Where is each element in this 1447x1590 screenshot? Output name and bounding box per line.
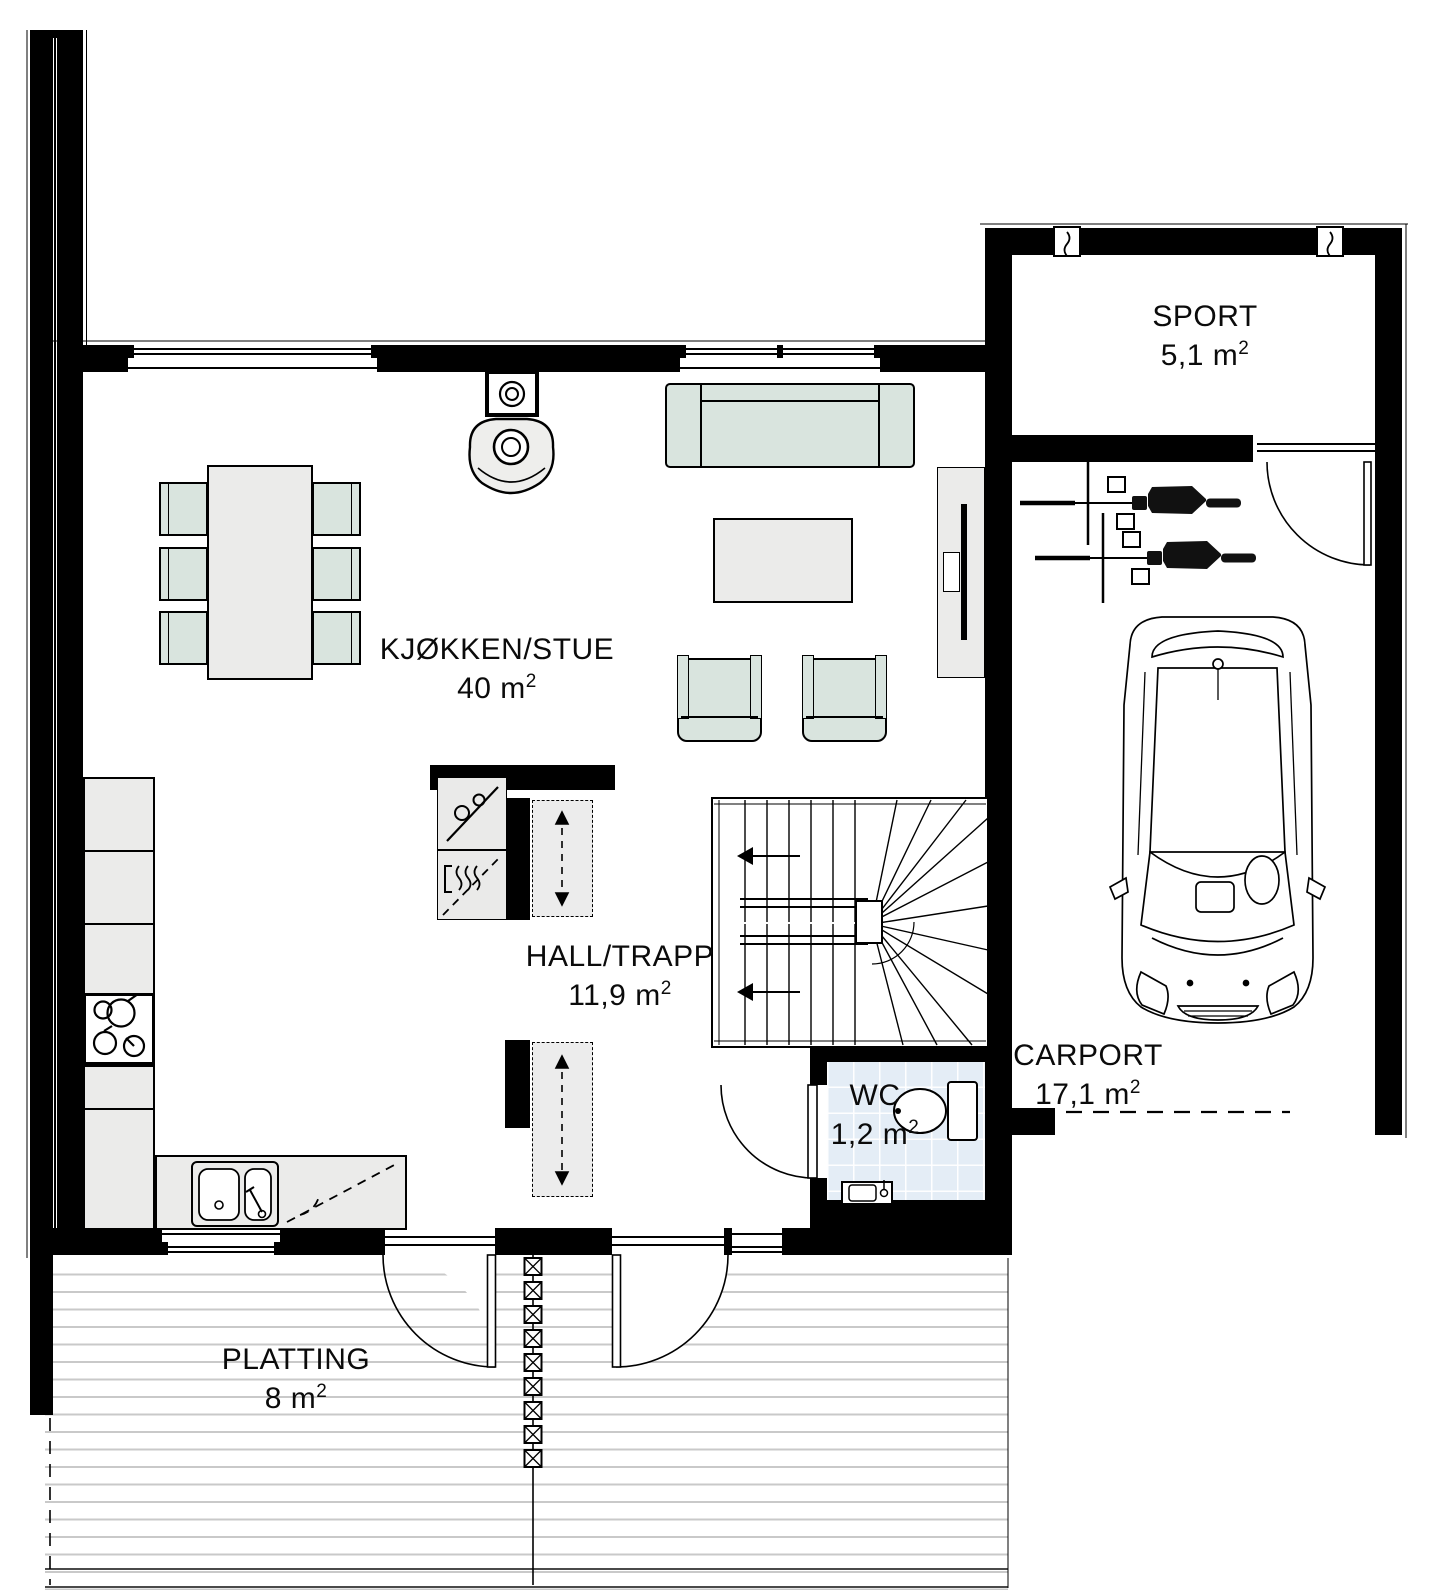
staircase (712, 798, 988, 1047)
room-label-sport: SPORT 5,1 m2 (1152, 297, 1257, 375)
kitchen-sink-icon (192, 1162, 278, 1226)
cooktop-burners (94, 994, 144, 1056)
oven-cabinet-glyph (443, 856, 501, 915)
dishwasher-icon (287, 1163, 398, 1222)
room-label-hall: HALL/TRAPP 11,9 m2 (526, 937, 714, 1015)
car-icon (1110, 617, 1325, 1023)
room-label-wc: WC 1,2 m2 (831, 1076, 920, 1154)
wc-sink-icon (842, 1180, 892, 1204)
linework-overlay (0, 0, 1447, 1590)
sport-door (1267, 462, 1371, 565)
bicycle-icon (1035, 513, 1256, 603)
fan-cabinet-glyph (447, 787, 498, 841)
floor-plan: KJØKKEN/STUE 40 m2 HALL/TRAPP 11,9 m2 WC… (0, 0, 1447, 1590)
room-label-carport: CARPORT 17,1 m2 (1013, 1036, 1163, 1114)
wood-stove-icon (470, 372, 554, 493)
room-label-kitchen-living: KJØKKEN/STUE 40 m2 (380, 630, 614, 708)
terrace-divider-fence (525, 1255, 542, 1585)
vent-glyphs (1065, 232, 1333, 256)
wc-door (721, 1085, 817, 1178)
room-label-platting: PLATTING 8 m2 (222, 1340, 370, 1418)
